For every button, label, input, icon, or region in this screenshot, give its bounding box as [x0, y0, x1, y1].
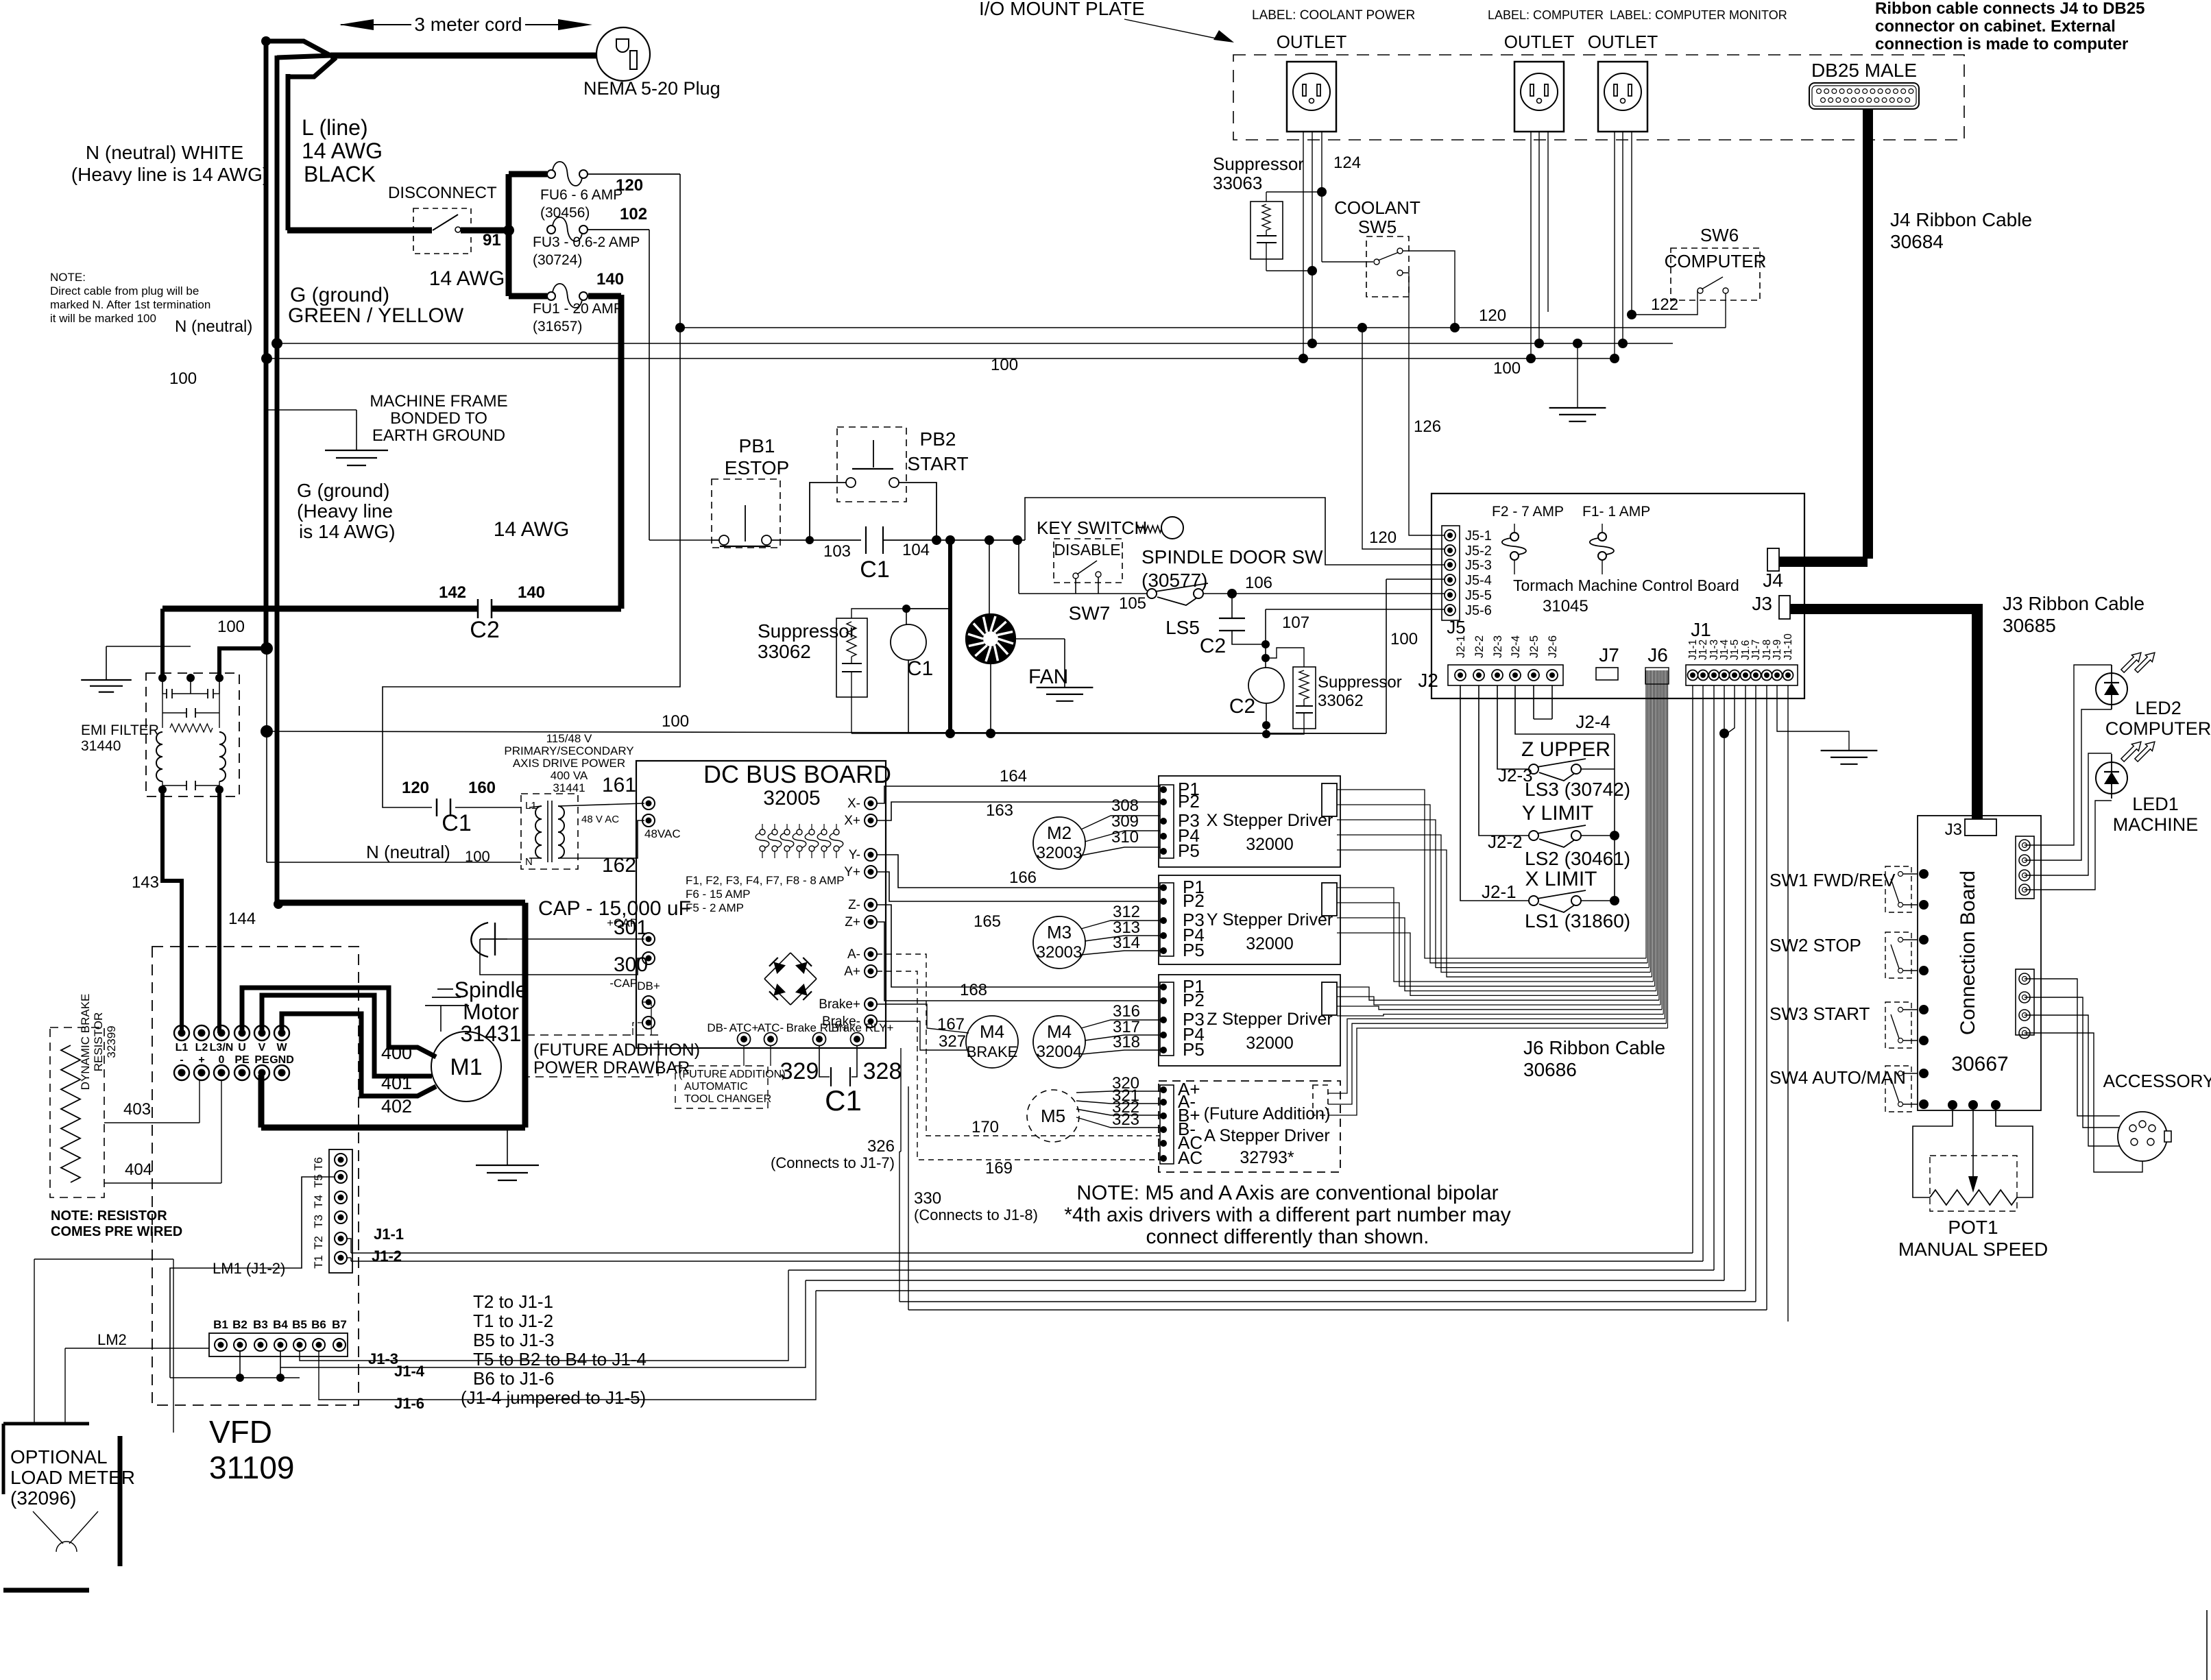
svg-text:31440: 31440 — [81, 738, 121, 754]
svg-text:BRAKE: BRAKE — [967, 1043, 1018, 1060]
svg-text:124: 124 — [1333, 154, 1361, 172]
svg-text:J4 Ribbon Cable: J4 Ribbon Cable — [1890, 209, 2032, 230]
svg-text:M5: M5 — [1041, 1106, 1065, 1126]
svg-text:B2: B2 — [232, 1318, 247, 1331]
svg-text:(Heavy line: (Heavy line — [297, 500, 393, 522]
svg-text:404: 404 — [125, 1160, 152, 1179]
svg-text:G (ground): G (ground) — [290, 284, 389, 306]
svg-text:SW2 STOP: SW2 STOP — [1769, 935, 1861, 955]
svg-text:BLACK: BLACK — [304, 162, 376, 186]
svg-text:J2-1: J2-1 — [1482, 881, 1517, 902]
svg-text:328: 328 — [863, 1058, 902, 1084]
svg-text:(31657): (31657) — [533, 319, 582, 334]
svg-text:100: 100 — [1493, 359, 1521, 378]
svg-text:0: 0 — [219, 1054, 225, 1066]
svg-text:162: 162 — [602, 854, 636, 877]
svg-text:DISABLE: DISABLE — [1054, 541, 1120, 559]
svg-text:Suppressor: Suppressor — [758, 620, 856, 642]
svg-text:COMPUTER: COMPUTER — [2105, 718, 2211, 739]
svg-text:120: 120 — [402, 779, 429, 797]
svg-text:140: 140 — [518, 583, 545, 602]
svg-text:MACHINE FRAME: MACHINE FRAME — [370, 392, 507, 411]
svg-text:LS5: LS5 — [1165, 617, 1200, 638]
svg-text:EARTH GROUND: EARTH GROUND — [372, 426, 505, 445]
svg-text:400: 400 — [381, 1043, 412, 1063]
svg-text:SW3 START: SW3 START — [1769, 1003, 1870, 1024]
svg-text:J2-4: J2-4 — [1575, 711, 1610, 732]
svg-text:TOOL CHANGER: TOOL CHANGER — [684, 1093, 771, 1105]
svg-text:(30724): (30724) — [533, 252, 582, 268]
svg-text:LOAD METER: LOAD METER — [10, 1467, 135, 1488]
svg-text:START: START — [907, 453, 968, 474]
svg-text:(FUTURE ADDITION): (FUTURE ADDITION) — [679, 1069, 786, 1080]
svg-text:DISCONNECT: DISCONNECT — [388, 184, 497, 202]
svg-text:J5-5: J5-5 — [1465, 588, 1492, 603]
svg-text:C2: C2 — [470, 617, 499, 643]
svg-text:NOTE: M5 and A Axis are conven: NOTE: M5 and A Axis are conventional bip… — [1076, 1182, 1498, 1204]
svg-text:P5: P5 — [1178, 840, 1200, 861]
svg-text:SW4 AUTO/MAN: SW4 AUTO/MAN — [1769, 1067, 1906, 1088]
svg-text:MACHINE: MACHINE — [2113, 814, 2199, 835]
svg-text:Ribbon cable connects J4 to DB: Ribbon cable connects J4 to DB25 — [1875, 0, 2144, 18]
svg-text:310: 310 — [1111, 828, 1139, 847]
svg-text:33062: 33062 — [1318, 692, 1364, 710]
svg-text:122: 122 — [1651, 295, 1678, 314]
svg-text:B7: B7 — [332, 1318, 347, 1331]
svg-text:U: U — [238, 1042, 246, 1054]
svg-text:32003: 32003 — [1037, 844, 1083, 862]
svg-text:Y+: Y+ — [844, 865, 860, 879]
svg-text:OUTLET: OUTLET — [1504, 32, 1575, 52]
svg-text:F5 - 2 AMP: F5 - 2 AMP — [686, 901, 744, 914]
svg-text:31109: 31109 — [209, 1450, 295, 1485]
svg-text:(Future Addition): (Future Addition) — [1204, 1104, 1331, 1123]
svg-text:100: 100 — [217, 618, 245, 636]
svg-text:NOTE:: NOTE: — [50, 271, 86, 284]
svg-text:+: + — [198, 1054, 204, 1066]
svg-text:T1 to J1-2: T1 to J1-2 — [473, 1311, 553, 1331]
svg-text:126: 126 — [1414, 417, 1441, 436]
svg-text:403: 403 — [123, 1100, 151, 1119]
svg-text:T5 to B2 to B4 to J1-4: T5 to B2 to B4 to J1-4 — [473, 1349, 647, 1369]
svg-text:LABEL: COMPUTER: LABEL: COMPUTER — [1488, 8, 1604, 22]
svg-text:J2-3: J2-3 — [1491, 635, 1504, 658]
svg-text:Spindle: Spindle — [455, 977, 528, 1002]
svg-text:Suppressor: Suppressor — [1318, 673, 1402, 692]
svg-text:SW1 FWD/REV: SW1 FWD/REV — [1769, 870, 1896, 890]
svg-text:C1: C1 — [825, 1084, 862, 1117]
svg-text:J2-5: J2-5 — [1527, 635, 1541, 658]
svg-text:160: 160 — [468, 779, 496, 797]
svg-text:BONDED TO: BONDED TO — [390, 409, 487, 428]
svg-text:is 14 AWG): is 14 AWG) — [299, 521, 396, 542]
svg-text:J5-6: J5-6 — [1465, 603, 1492, 618]
svg-text:103: 103 — [823, 542, 851, 561]
svg-text:C1: C1 — [860, 557, 889, 583]
svg-text:32793*: 32793* — [1240, 1148, 1294, 1167]
svg-text:AC: AC — [1178, 1147, 1203, 1168]
svg-text:326: 326 — [867, 1137, 895, 1156]
svg-text:J1-6: J1-6 — [394, 1395, 424, 1412]
svg-text:L1: L1 — [176, 1042, 189, 1054]
svg-text:143: 143 — [132, 873, 159, 892]
svg-text:N (neutral) WHITE: N (neutral) WHITE — [86, 142, 243, 163]
svg-text:P2: P2 — [1183, 990, 1205, 1010]
svg-text:J3 Ribbon Cable: J3 Ribbon Cable — [2003, 593, 2144, 614]
svg-text:OPTIONAL: OPTIONAL — [10, 1446, 108, 1468]
svg-text:(30456): (30456) — [540, 205, 590, 221]
svg-text:-: - — [180, 1054, 183, 1066]
svg-text:J2-2: J2-2 — [1473, 635, 1486, 658]
svg-text:DYNAMIC BRAKE: DYNAMIC BRAKE — [79, 994, 92, 1091]
svg-text:48VAC: 48VAC — [644, 827, 681, 840]
svg-text:FU6 - 6 AMP: FU6 - 6 AMP — [540, 187, 623, 203]
svg-text:N (neutral): N (neutral) — [366, 842, 450, 862]
svg-text:402: 402 — [381, 1096, 412, 1117]
svg-text:142: 142 — [439, 583, 466, 602]
svg-text:(32096): (32096) — [10, 1487, 77, 1509]
svg-text:B1: B1 — [213, 1318, 228, 1331]
svg-text:LS2 (30461): LS2 (30461) — [1525, 848, 1630, 869]
svg-text:Tormach Machine Control Board: Tormach Machine Control Board — [1513, 576, 1739, 594]
svg-text:Z UPPER: Z UPPER — [1521, 738, 1610, 761]
svg-text:J5: J5 — [1447, 617, 1465, 637]
svg-text:(Heavy line is 14 AWG): (Heavy line is 14 AWG) — [71, 164, 269, 185]
svg-text:POWER DRAWBAR: POWER DRAWBAR — [533, 1058, 690, 1078]
svg-text:M3: M3 — [1047, 922, 1072, 942]
svg-text:B5: B5 — [292, 1318, 307, 1331]
svg-text:14 AWG: 14 AWG — [302, 138, 383, 163]
svg-text:14 AWG: 14 AWG — [429, 267, 505, 290]
svg-text:OUTLET: OUTLET — [1277, 32, 1347, 52]
svg-text:M4: M4 — [1047, 1021, 1072, 1042]
svg-text:PB1: PB1 — [739, 435, 775, 456]
svg-text:*4th axis drivers with a diffe: *4th axis drivers with a different part … — [1064, 1204, 1510, 1226]
svg-text:LM2: LM2 — [97, 1331, 127, 1348]
svg-text:32000: 32000 — [1246, 835, 1294, 854]
svg-text:J1-9: J1-9 — [1772, 640, 1783, 660]
svg-text:32399: 32399 — [105, 1025, 118, 1058]
svg-text:NEMA 5-20 Plug: NEMA 5-20 Plug — [583, 78, 721, 99]
svg-text:Z+: Z+ — [845, 915, 860, 929]
svg-text:marked N. After 1st terminati: marked N. After 1st termination — [50, 298, 210, 311]
svg-text:GND: GND — [269, 1054, 294, 1066]
svg-text:MANUAL SPEED: MANUAL SPEED — [1898, 1239, 2048, 1260]
svg-text:J2-6: J2-6 — [1546, 635, 1559, 658]
svg-text:Brake-: Brake- — [822, 1014, 860, 1029]
svg-text:L (line): L (line) — [302, 115, 368, 140]
svg-text:LS3 (30742): LS3 (30742) — [1525, 779, 1630, 800]
svg-text:J1: J1 — [1691, 619, 1711, 640]
svg-text:329: 329 — [780, 1058, 819, 1084]
svg-text:-CAP: -CAP — [609, 977, 638, 990]
svg-text:M2: M2 — [1047, 823, 1072, 843]
svg-text:104: 104 — [902, 541, 930, 559]
svg-text:SW5: SW5 — [1358, 217, 1397, 237]
svg-text:31045: 31045 — [1543, 597, 1588, 616]
svg-text:J1-2: J1-2 — [1697, 640, 1709, 660]
svg-text:105: 105 — [1119, 594, 1146, 613]
svg-text:M1: M1 — [450, 1054, 482, 1080]
svg-text:(Connects to J1-8): (Connects to J1-8) — [914, 1206, 1038, 1224]
svg-text:L2: L2 — [195, 1042, 208, 1054]
svg-text:LS1 (31860): LS1 (31860) — [1525, 910, 1630, 932]
svg-text:T3: T3 — [312, 1215, 325, 1228]
svg-text:Y-: Y- — [849, 848, 860, 862]
svg-text:33063: 33063 — [1213, 173, 1262, 193]
svg-text:(Connects to J1-7): (Connects to J1-7) — [771, 1154, 895, 1171]
svg-text:X LIMIT: X LIMIT — [1525, 868, 1597, 890]
svg-text:X-: X- — [847, 796, 860, 811]
svg-text:J5-3: J5-3 — [1465, 558, 1492, 573]
svg-text:POT1: POT1 — [1948, 1217, 1998, 1238]
svg-text:J6 Ribbon Cable: J6 Ribbon Cable — [1523, 1037, 1665, 1058]
svg-text:33062: 33062 — [758, 641, 811, 662]
svg-text:100: 100 — [662, 712, 689, 731]
svg-text:100: 100 — [991, 356, 1018, 374]
svg-text:(J1-4 jumpered to J1-5): (J1-4 jumpered to J1-5) — [461, 1387, 646, 1408]
svg-text:140: 140 — [596, 270, 624, 289]
svg-text:VFD: VFD — [209, 1414, 272, 1450]
svg-text:T6: T6 — [312, 1157, 325, 1171]
svg-text:32003: 32003 — [1037, 943, 1083, 962]
svg-text:W: W — [276, 1042, 287, 1054]
svg-text:Direct cable from plug will be: Direct cable from plug will be — [50, 284, 199, 297]
svg-text:Connection Board: Connection Board — [1957, 871, 1979, 1035]
svg-text:G (ground): G (ground) — [297, 480, 389, 501]
svg-text:connector on cabinet. Externa: connector on cabinet. External — [1875, 17, 2116, 36]
svg-text:T2 to J1-1: T2 to J1-1 — [473, 1291, 553, 1312]
svg-text:EMI FILTER: EMI FILTER — [81, 722, 159, 738]
svg-text:M4: M4 — [980, 1021, 1004, 1042]
svg-text:3 meter cord: 3 meter cord — [414, 14, 522, 35]
svg-text:T4: T4 — [312, 1195, 325, 1208]
svg-text:166: 166 — [1009, 868, 1037, 887]
svg-text:120: 120 — [1479, 306, 1506, 325]
svg-text:14 AWG: 14 AWG — [494, 518, 570, 541]
svg-text:115/48 V: 115/48 V — [546, 732, 592, 745]
svg-text:GREEN / YELLOW: GREEN / YELLOW — [288, 304, 464, 327]
svg-text:J2: J2 — [1418, 670, 1438, 691]
svg-text:LABEL: COMPUTER MONITOR: LABEL: COMPUTER MONITOR — [1610, 8, 1787, 22]
svg-text:Y Stepper Driver: Y Stepper Driver — [1207, 910, 1333, 929]
svg-text:LED1: LED1 — [2132, 794, 2179, 814]
svg-text:32005: 32005 — [763, 787, 820, 809]
svg-text:106: 106 — [1245, 574, 1272, 592]
svg-text:314: 314 — [1113, 934, 1140, 952]
svg-text:COMPUTER: COMPUTER — [1665, 251, 1767, 271]
svg-text:32000: 32000 — [1246, 1034, 1294, 1053]
svg-text:Z-: Z- — [848, 898, 860, 912]
svg-text:J3: J3 — [1945, 820, 1962, 839]
svg-text:FAN: FAN — [1028, 666, 1068, 688]
svg-text:B5 to J1-3: B5 to J1-3 — [473, 1330, 555, 1350]
svg-text:30686: 30686 — [1523, 1059, 1577, 1080]
svg-text:PRIMARY/SECONDARY: PRIMARY/SECONDARY — [504, 744, 633, 757]
svg-text:FU1 - 20 AMP: FU1 - 20 AMP — [533, 301, 623, 317]
svg-text:J4: J4 — [1763, 570, 1783, 591]
svg-text:A Stepper Driver: A Stepper Driver — [1204, 1126, 1329, 1145]
svg-text:327: 327 — [939, 1032, 966, 1051]
svg-text:J7: J7 — [1599, 644, 1619, 666]
svg-text:30685: 30685 — [2003, 615, 2056, 636]
svg-text:144: 144 — [228, 910, 256, 928]
svg-text:I/O MOUNT PLATE: I/O MOUNT PLATE — [979, 0, 1145, 19]
svg-text:T1: T1 — [312, 1255, 325, 1269]
svg-text:J1-5: J1-5 — [1729, 640, 1741, 660]
svg-text:100: 100 — [169, 369, 197, 388]
svg-text:318: 318 — [1113, 1033, 1140, 1051]
svg-text:ACCESSORY: ACCESSORY — [2103, 1071, 2211, 1091]
svg-text:161: 161 — [602, 774, 636, 796]
svg-text:165: 165 — [974, 912, 1001, 931]
svg-text:J2-4: J2-4 — [1509, 635, 1522, 658]
svg-text:B6 to J1-6: B6 to J1-6 — [473, 1368, 555, 1389]
svg-text:J1-7: J1-7 — [1750, 640, 1762, 660]
svg-text:FU3 - 0.6-2 AMP: FU3 - 0.6-2 AMP — [533, 234, 640, 250]
svg-text:31441: 31441 — [553, 781, 585, 794]
svg-text:102: 102 — [620, 205, 647, 223]
svg-text:connect differently than shown: connect differently than shown. — [1146, 1226, 1429, 1248]
svg-text:T2: T2 — [312, 1236, 325, 1250]
svg-text:F1, F2, F3, F4, F7, F8 - 8 AMP: F1, F2, F3, F4, F7, F8 - 8 AMP — [686, 874, 844, 887]
svg-text:AXIS DRIVE POWER: AXIS DRIVE POWER — [513, 757, 625, 770]
svg-text:48 V AC: 48 V AC — [581, 814, 619, 825]
svg-text:168: 168 — [960, 981, 987, 999]
svg-text:F2 - 7 AMP: F2 - 7 AMP — [1492, 504, 1564, 520]
svg-text:LABEL: COOLANT POWER: LABEL: COOLANT POWER — [1252, 8, 1415, 23]
svg-text:P2: P2 — [1178, 791, 1200, 812]
svg-text:OUTLET: OUTLET — [1588, 32, 1658, 52]
svg-text:170: 170 — [971, 1118, 999, 1136]
svg-text:L3/N: L3/N — [210, 1042, 234, 1054]
svg-text:Brake+: Brake+ — [819, 997, 860, 1012]
svg-text:N (neutral): N (neutral) — [175, 317, 252, 336]
svg-text:B4: B4 — [273, 1318, 288, 1331]
svg-text:C2: C2 — [1200, 635, 1226, 657]
svg-text:RESISTOR: RESISTOR — [92, 1012, 105, 1072]
svg-text:L1: L1 — [525, 800, 537, 812]
svg-text:J3: J3 — [1752, 593, 1772, 614]
svg-text:P5: P5 — [1183, 940, 1205, 960]
svg-text:A-: A- — [847, 947, 860, 962]
svg-text:PB2: PB2 — [920, 428, 956, 450]
svg-text:120: 120 — [1369, 528, 1397, 547]
svg-text:Z Stepper Driver: Z Stepper Driver — [1207, 1010, 1332, 1029]
svg-text:SW6: SW6 — [1700, 225, 1739, 245]
svg-text:91: 91 — [483, 231, 501, 249]
svg-text:31431: 31431 — [461, 1021, 522, 1046]
svg-text:B6: B6 — [311, 1318, 326, 1331]
svg-text:SW7: SW7 — [1069, 602, 1111, 624]
svg-text:(30577): (30577) — [1141, 570, 1208, 591]
svg-text:C2: C2 — [1229, 695, 1255, 718]
svg-text:X+: X+ — [844, 814, 860, 828]
svg-text:COOLANT: COOLANT — [1334, 197, 1421, 218]
svg-text:323: 323 — [1112, 1110, 1139, 1129]
svg-text:F1- 1 AMP: F1- 1 AMP — [1582, 504, 1650, 520]
svg-text:NOTE: RESISTOR: NOTE: RESISTOR — [51, 1208, 167, 1224]
svg-text:DC BUS BOARD: DC BUS BOARD — [703, 760, 891, 788]
svg-text:32004: 32004 — [1037, 1043, 1083, 1061]
svg-text:KEY SWITCH: KEY SWITCH — [1037, 518, 1147, 538]
svg-text:30667: 30667 — [1951, 1053, 2008, 1075]
svg-text:J5-4: J5-4 — [1465, 573, 1492, 588]
svg-text:Suppressor: Suppressor — [1213, 154, 1304, 174]
svg-text:A+: A+ — [844, 964, 860, 979]
svg-text:PE: PE — [234, 1054, 250, 1066]
svg-text:it will be marked 100: it will be marked 100 — [50, 312, 156, 325]
svg-text:J1-1: J1-1 — [374, 1226, 404, 1243]
svg-text:120: 120 — [616, 176, 643, 195]
svg-text:X Stepper Driver: X Stepper Driver — [1207, 811, 1333, 830]
svg-text:V: V — [258, 1042, 266, 1054]
svg-text:connection is made to computer: connection is made to computer — [1875, 35, 2128, 53]
svg-text:T5: T5 — [312, 1174, 325, 1188]
svg-text:COMES PRE WIRED: COMES PRE WIRED — [51, 1224, 182, 1239]
svg-text:J5-2: J5-2 — [1465, 544, 1492, 559]
svg-text:Y LIMIT: Y LIMIT — [1522, 802, 1593, 825]
svg-text:F6 - 15 AMP: F6 - 15 AMP — [686, 888, 750, 901]
svg-text:C1: C1 — [442, 810, 471, 836]
svg-text:107: 107 — [1282, 613, 1309, 632]
svg-text:LED2: LED2 — [2135, 698, 2182, 718]
svg-text:C1: C1 — [907, 657, 933, 680]
svg-text:163: 163 — [986, 801, 1013, 820]
svg-text:SPINDLE DOOR SW: SPINDLE DOOR SW — [1141, 546, 1323, 568]
svg-text:DB-: DB- — [707, 1021, 727, 1034]
svg-text:DB25 MALE: DB25 MALE — [1811, 60, 1917, 81]
svg-text:400 VA: 400 VA — [551, 769, 588, 782]
svg-text:Motor: Motor — [463, 999, 519, 1024]
svg-text:PE: PE — [254, 1054, 269, 1066]
svg-text:P2: P2 — [1183, 890, 1205, 911]
svg-text:J2-1: J2-1 — [1454, 635, 1467, 658]
svg-text:+CAP: +CAP — [607, 916, 638, 929]
svg-text:J1-10: J1-10 — [1783, 633, 1794, 660]
svg-text:J1-2: J1-2 — [372, 1247, 402, 1265]
svg-text:ESTOP: ESTOP — [725, 457, 789, 478]
svg-text:AUTOMATIC: AUTOMATIC — [684, 1081, 748, 1093]
svg-text:J1-4: J1-4 — [394, 1363, 425, 1380]
svg-text:164: 164 — [1000, 767, 1027, 786]
svg-text:169: 169 — [985, 1159, 1013, 1178]
svg-text:(FUTURE ADDITION): (FUTURE ADDITION) — [533, 1040, 700, 1060]
svg-text:32000: 32000 — [1246, 934, 1294, 953]
svg-text:J6: J6 — [1647, 644, 1668, 666]
svg-text:330: 330 — [914, 1189, 941, 1208]
svg-text:J2-2: J2-2 — [1488, 831, 1523, 852]
svg-text:401: 401 — [381, 1073, 412, 1093]
svg-text:B3: B3 — [253, 1318, 268, 1331]
svg-text:P5: P5 — [1183, 1039, 1205, 1060]
svg-text:100: 100 — [1390, 630, 1418, 648]
svg-text:DB+: DB+ — [637, 979, 660, 993]
svg-text:J5-1: J5-1 — [1465, 528, 1492, 544]
svg-text:30684: 30684 — [1890, 231, 1944, 252]
